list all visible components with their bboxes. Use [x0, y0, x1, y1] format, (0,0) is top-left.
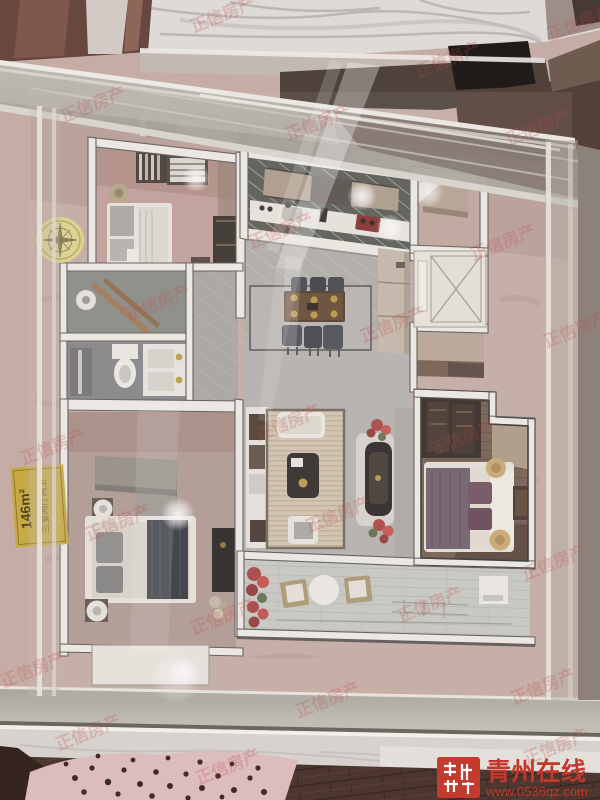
svg-text:www.0536qz.com: www.0536qz.com [485, 784, 588, 799]
svg-text:青州在线: 青州在线 [486, 757, 586, 786]
